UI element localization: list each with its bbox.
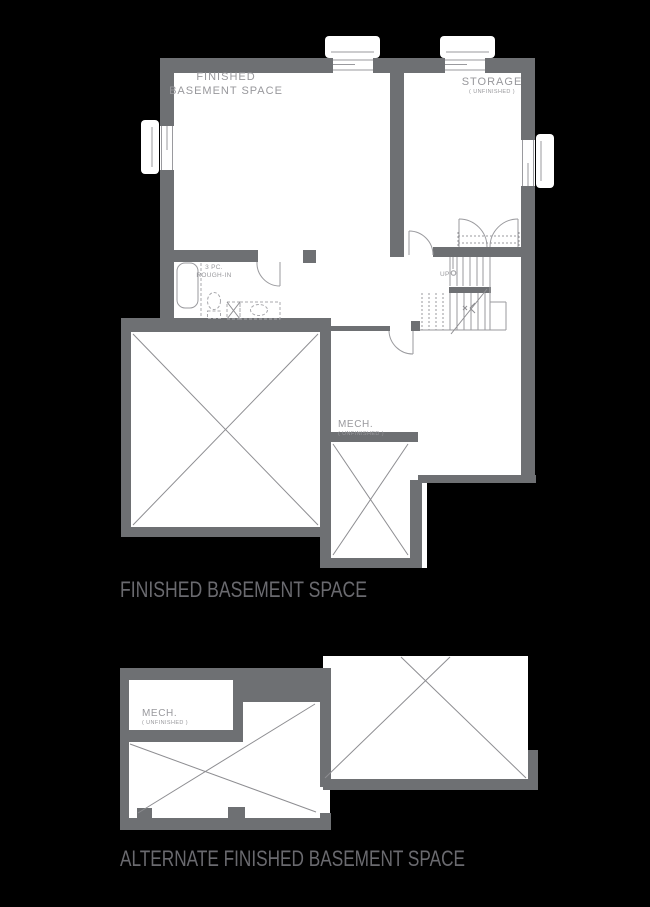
storage-label: STORAGE [462,76,523,88]
window-well-top-left [325,36,380,58]
mech-label: MECH. [338,419,373,430]
screenshot-root: FINISHED BASEMENT SPACE STORAGE ( UNFINI… [0,0,650,907]
up-label: UP [440,271,450,278]
roughin-label-line2: ROUGH-IN [196,272,231,279]
mech-sublabel: ( UNFINISHED ) [338,431,384,437]
finished-basement-label-line2: BASEMENT SPACE [169,85,283,97]
alt-mech-sublabel: ( UNFINISHED ) [142,720,188,726]
alt-mech-label: MECH. [142,708,177,719]
storage-sublabel: ( UNFINISHED ) [469,89,515,95]
roughin-label-line1: 3 PC. [205,264,223,271]
floorplan-sheet: FINISHED BASEMENT SPACE STORAGE ( UNFINI… [0,0,650,907]
column [303,250,316,263]
window-well-top-right [440,36,495,58]
finished-basement-label-line1: FINISHED [196,71,255,83]
window-well-left [141,120,159,174]
main-plan-caption: FINISHED BASEMENT SPACE [120,577,367,602]
alt-plan-caption: ALTERNATE FINISHED BASEMENT SPACE [120,846,465,871]
window-well-right [536,134,554,188]
